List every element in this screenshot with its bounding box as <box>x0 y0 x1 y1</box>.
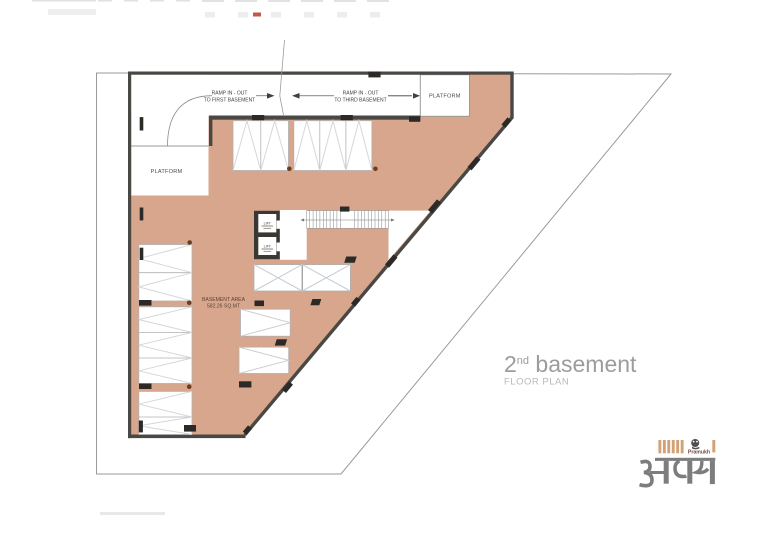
svg-text:RAMP IN - OUT: RAMP IN - OUT <box>212 91 248 97</box>
svg-text:Pramukh: Pramukh <box>688 449 710 455</box>
svg-text:PLATFORM: PLATFORM <box>151 169 183 175</box>
svg-text:BASEMENT AREA: BASEMENT AREA <box>202 297 246 303</box>
svg-text:TO FIRST BASEMENT: TO FIRST BASEMENT <box>204 98 256 104</box>
svg-text:PLATFORM: PLATFORM <box>429 94 461 100</box>
svg-text:582.26 SQ.MT: 582.26 SQ.MT <box>207 303 240 309</box>
svg-text:LIFT: LIFT <box>264 245 272 249</box>
svg-text:FLOOR PLAN: FLOOR PLAN <box>504 376 569 387</box>
svg-text:TO THIRD BASEMENT: TO THIRD BASEMENT <box>334 98 386 104</box>
svg-text:RAMP IN - OUT: RAMP IN - OUT <box>343 91 379 97</box>
svg-text:LIFT: LIFT <box>264 222 272 226</box>
